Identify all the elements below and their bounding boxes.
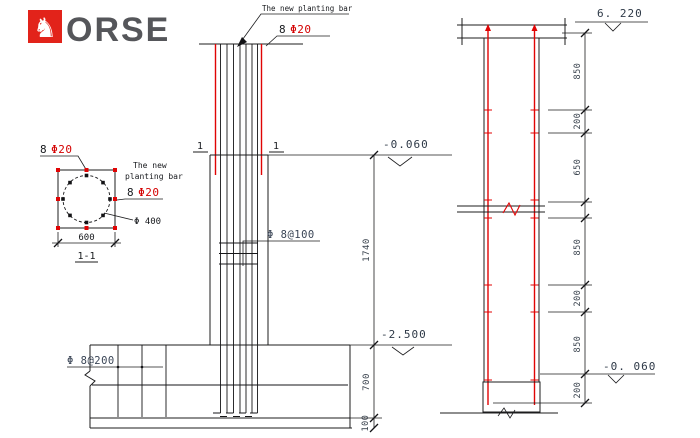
top-bars-size: 8Φ20 (279, 23, 312, 36)
mid-break-zigzag (503, 203, 520, 215)
leader-node (117, 366, 120, 369)
section-view-1-1: 8Φ20 The new plan (40, 143, 183, 262)
segment-dimension-7: 200 (573, 382, 583, 399)
horse-head-icon: ♞ (33, 13, 57, 44)
existing-bar-dots (61, 174, 112, 225)
section-bars-leader (40, 156, 87, 171)
top-note-arrowhead (237, 37, 247, 47)
logo: ♞ ORSE (28, 10, 170, 49)
segment-dimension-5: 200 (573, 290, 583, 307)
section-bars-annotation: 8Φ20 (40, 143, 73, 156)
mid-break-lines (457, 206, 545, 212)
top-level-mark: 6. 220 (575, 7, 648, 31)
footing-break-symbol (85, 371, 95, 386)
footing-level-mark: -2.500 (350, 328, 452, 355)
segment-dimension-1: 850 (573, 63, 583, 80)
joint-level-label: -0.060 (383, 138, 429, 151)
top-note: The new planting bar (262, 4, 353, 13)
column-edges (484, 38, 539, 382)
logo-text: ORSE (66, 11, 170, 49)
section-view-label: 1-1 (77, 251, 95, 262)
footing-level-label: -2.500 (381, 328, 427, 341)
bottom-level-label: -0. 060 (603, 360, 656, 373)
column-height-dimension: 1740 (362, 238, 372, 262)
base-block (483, 382, 540, 412)
elevation-dimension-line: 1740 700 100 (350, 151, 382, 432)
segment-dimension-3: 650 (573, 159, 583, 176)
section-bars-right-leader (117, 199, 163, 200)
footing-depth-dimension: 700 (362, 373, 372, 391)
stirrup-annotation: Φ 8@100 (267, 229, 315, 241)
segment-dimension-6: 850 (573, 336, 583, 353)
section-width-value: 600 (78, 233, 94, 243)
circle-diameter-leader (104, 213, 133, 220)
column-bars (213, 44, 258, 417)
top-level-label: 6. 220 (597, 7, 643, 20)
section-width-dimension: 600 (52, 232, 121, 247)
footing-bars-lines (92, 345, 348, 417)
column-section-outline (58, 170, 115, 228)
joint-level-mark: -0.060 (268, 138, 452, 166)
segment-dimension-2: 200 (573, 113, 583, 130)
leader-node (141, 366, 144, 369)
base-depth-dimension: 100 (361, 415, 371, 432)
right-dimension-line: 850 200 650 850 200 850 200 (493, 29, 592, 407)
column-strengthening-elevation: 6. 220 850 200 650 850 200 850 200 (440, 7, 656, 418)
footing-outline (85, 345, 352, 428)
footing-bars-annotation: Φ 8@200 (67, 355, 115, 367)
cut-mark-left: 1 (197, 141, 203, 152)
cut-mark-right: 1 (273, 141, 279, 152)
column-outline (210, 155, 268, 345)
anchor-tick-marks (484, 110, 539, 380)
section-bars-annotation-right: 8Φ20 (127, 186, 160, 199)
new-planting-bar-note-line2: planting bar (125, 172, 183, 181)
drawing-canvas: ♞ ORSE 8Φ20 (0, 0, 700, 438)
new-planting-bar-note-line1: The new (133, 161, 167, 170)
top-slab-lines (457, 18, 567, 45)
circle-diameter-annotation: Φ 400 (134, 217, 161, 227)
segment-dimension-4: 850 (573, 239, 583, 256)
strengthening-bars-red (488, 27, 535, 405)
bottom-level-mark: -0. 060 (540, 360, 656, 383)
